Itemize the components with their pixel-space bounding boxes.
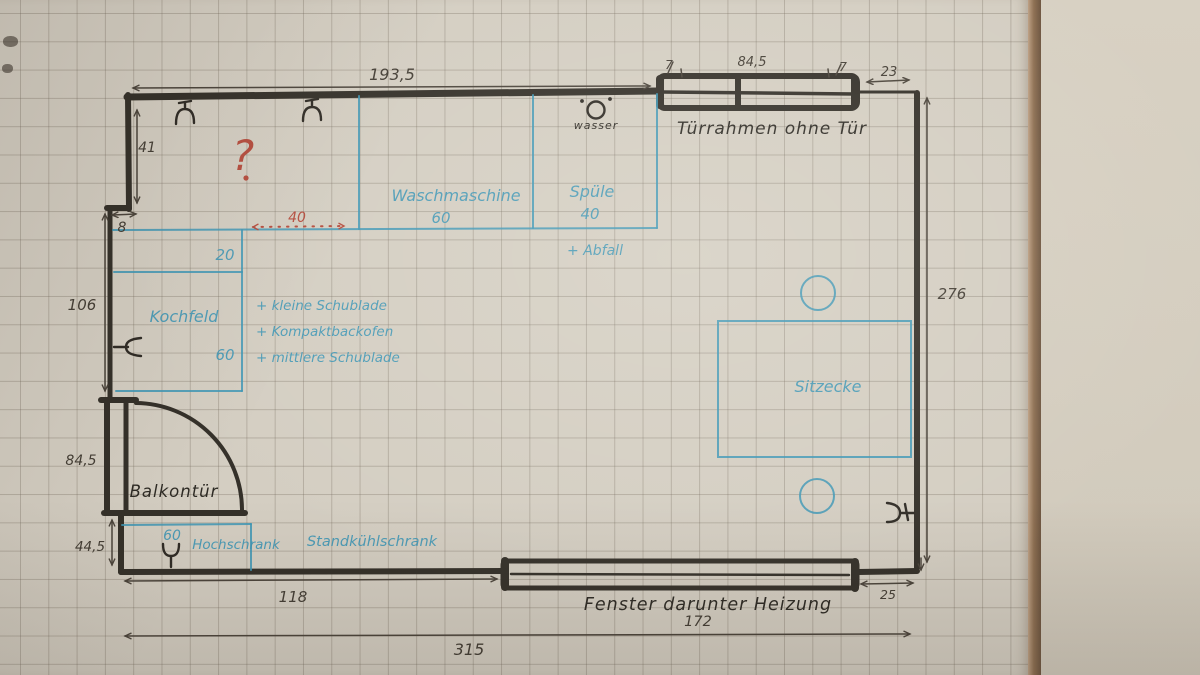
label-depth-20: 20 [215, 246, 234, 264]
wall-bottom-right [858, 571, 917, 572]
dim-23: 23 [881, 65, 898, 80]
water-icon-dot [608, 97, 612, 101]
dim-top-width: 193,5 [369, 65, 415, 84]
label-cabinet-width: 60 [163, 528, 181, 544]
label-hob-note-1: + kleine Schublade [256, 298, 387, 314]
dim-line-315 [125, 634, 910, 636]
dim-25: 25 [880, 587, 896, 602]
wall-left-top [128, 95, 129, 209]
floorplan-photo: 193,5 41 8 106 84,5 44,5 118 315 276 23 … [0, 0, 1200, 675]
socket-icon-left-wall [114, 338, 141, 356]
label-door-frame: Türrahmen ohne Tür [677, 119, 867, 139]
dim-line-118 [125, 579, 497, 581]
label-fridge: Standkühlschrank [307, 534, 438, 550]
walls [101, 76, 917, 588]
dim-line-top-width [133, 86, 650, 88]
dim-41: 41 [138, 140, 156, 156]
label-washing-machine: Waschmaschine [391, 186, 520, 205]
dim-line-23 [867, 80, 909, 82]
label-hob-width: 60 [215, 346, 234, 364]
label-hob-note-2: + Kompaktbackofen [256, 324, 393, 340]
label-tall-cabinet: Hochschrank [192, 537, 281, 553]
dim-line-8 [112, 214, 136, 215]
red-gap-arrow [253, 226, 344, 227]
dim-frame-7-left: 7 [665, 57, 673, 72]
socket-icon [303, 99, 321, 121]
dim-276: 276 [938, 285, 967, 303]
dim-118: 118 [279, 588, 308, 606]
counter-front-line [113, 228, 657, 230]
dim-8: 8 [118, 220, 127, 236]
socket-icon-bottom-wall [163, 544, 179, 567]
water-icon-dot [580, 99, 584, 103]
label-sink-width: 40 [580, 205, 599, 223]
dim-frame-84-5: 84,5 [738, 55, 767, 70]
label-water: wasser [574, 119, 619, 132]
labels: 193,5 41 8 106 84,5 44,5 118 315 276 23 … [65, 55, 966, 659]
socket-icon [176, 101, 194, 124]
window-inner-line [511, 574, 849, 575]
dim-frame-7-right: 7 [839, 59, 847, 74]
door-frame-inner-line [662, 92, 854, 94]
label-balcony-door: Balkontür [130, 482, 219, 501]
water-connection-icon [588, 102, 605, 119]
wall-bottom-left [121, 571, 504, 572]
label-washing-machine-width: 60 [431, 209, 450, 227]
dim-tick-frame-left [681, 69, 682, 77]
socket-icon-right-wall [887, 503, 914, 522]
label-hob: Kochfeld [150, 307, 220, 326]
dim-172: 172 [684, 614, 712, 630]
dim-315: 315 [454, 640, 485, 659]
floorplan-drawing: 193,5 41 8 106 84,5 44,5 118 315 276 23 … [0, 0, 1200, 675]
seating-stool-top [801, 276, 835, 310]
label-window-heating: Fenster darunter Heizung [584, 595, 832, 615]
label-question-mark: ? [232, 131, 254, 180]
label-sink: Spüle [570, 182, 615, 201]
tall-cabinet-top-line [122, 524, 251, 525]
dim-84-5-left: 84,5 [65, 453, 96, 469]
dim-44-5: 44,5 [75, 539, 105, 555]
dim-line-25 [861, 583, 913, 584]
label-hob-note-3: + mittlere Schublade [256, 350, 400, 366]
seating-stool-bottom [800, 479, 834, 513]
label-red-40: 40 [288, 210, 306, 226]
dim-106: 106 [68, 296, 97, 314]
label-seating: Sitzecke [794, 377, 861, 396]
dim-tick-frame-right [828, 69, 829, 77]
wall-top [127, 91, 658, 97]
label-waste: + Abfall [567, 243, 623, 259]
